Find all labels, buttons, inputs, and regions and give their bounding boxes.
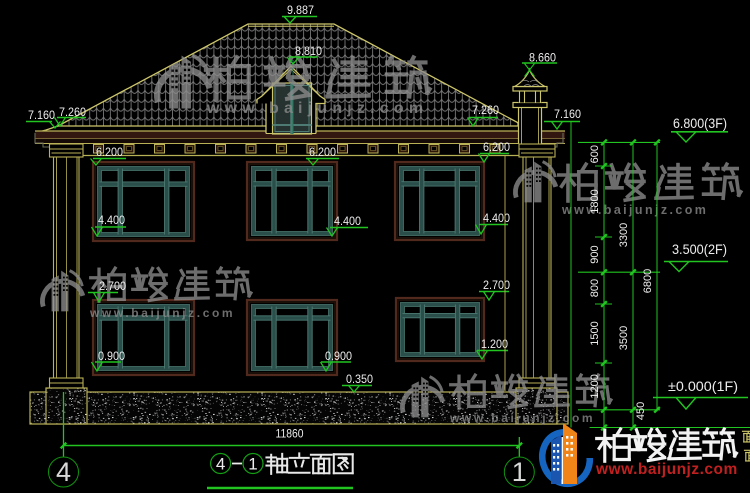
svg-text:450: 450 [635, 402, 647, 420]
svg-text:1.200: 1.200 [481, 337, 508, 351]
svg-text:4: 4 [56, 457, 71, 487]
svg-text:3500: 3500 [618, 326, 630, 350]
svg-text:0.350: 0.350 [346, 372, 373, 386]
svg-text:7.160: 7.160 [28, 108, 55, 122]
svg-text:6.200: 6.200 [309, 145, 336, 159]
svg-text:0.900: 0.900 [325, 349, 352, 363]
svg-text:www.baijunjz.com: www.baijunjz.com [89, 306, 235, 320]
svg-text:8.810: 8.810 [295, 44, 322, 58]
svg-text:800: 800 [589, 279, 601, 297]
svg-text:0.900: 0.900 [98, 349, 125, 363]
svg-text:www.baijunjz.com: www.baijunjz.com [561, 203, 708, 217]
svg-text:±0.000(1F): ±0.000(1F) [668, 379, 738, 394]
svg-text:7.160: 7.160 [554, 107, 581, 121]
svg-text:www.baijunjz.com: www.baijunjz.com [449, 411, 595, 425]
svg-text:www.baijunjz.com: www.baijunjz.com [595, 461, 738, 478]
svg-text:3.500(2F): 3.500(2F) [672, 242, 727, 257]
svg-text:6.200: 6.200 [96, 145, 123, 159]
svg-text:4: 4 [216, 455, 225, 474]
svg-text:900: 900 [589, 245, 601, 263]
svg-text:4.400: 4.400 [334, 214, 361, 228]
svg-text:1800: 1800 [589, 189, 601, 213]
svg-text:2.700: 2.700 [483, 278, 510, 292]
svg-text:7.260: 7.260 [472, 103, 499, 117]
svg-text:600: 600 [589, 145, 601, 163]
svg-text:1200: 1200 [589, 374, 601, 398]
svg-text:6.200: 6.200 [483, 140, 510, 154]
svg-text:4.400: 4.400 [98, 213, 125, 227]
svg-text:1: 1 [512, 457, 527, 487]
svg-text:6800: 6800 [642, 269, 654, 293]
svg-text:www.baijunjz.com: www.baijunjz.com [206, 100, 428, 117]
svg-text:1500: 1500 [589, 321, 601, 345]
svg-text:9.887: 9.887 [287, 3, 314, 17]
svg-text:3300: 3300 [618, 223, 630, 247]
svg-text:1: 1 [248, 455, 257, 474]
svg-text:6.800(3F): 6.800(3F) [673, 116, 727, 131]
svg-text:4.400: 4.400 [483, 211, 510, 225]
svg-text:11860: 11860 [276, 427, 304, 441]
svg-text:2.700: 2.700 [99, 279, 126, 293]
